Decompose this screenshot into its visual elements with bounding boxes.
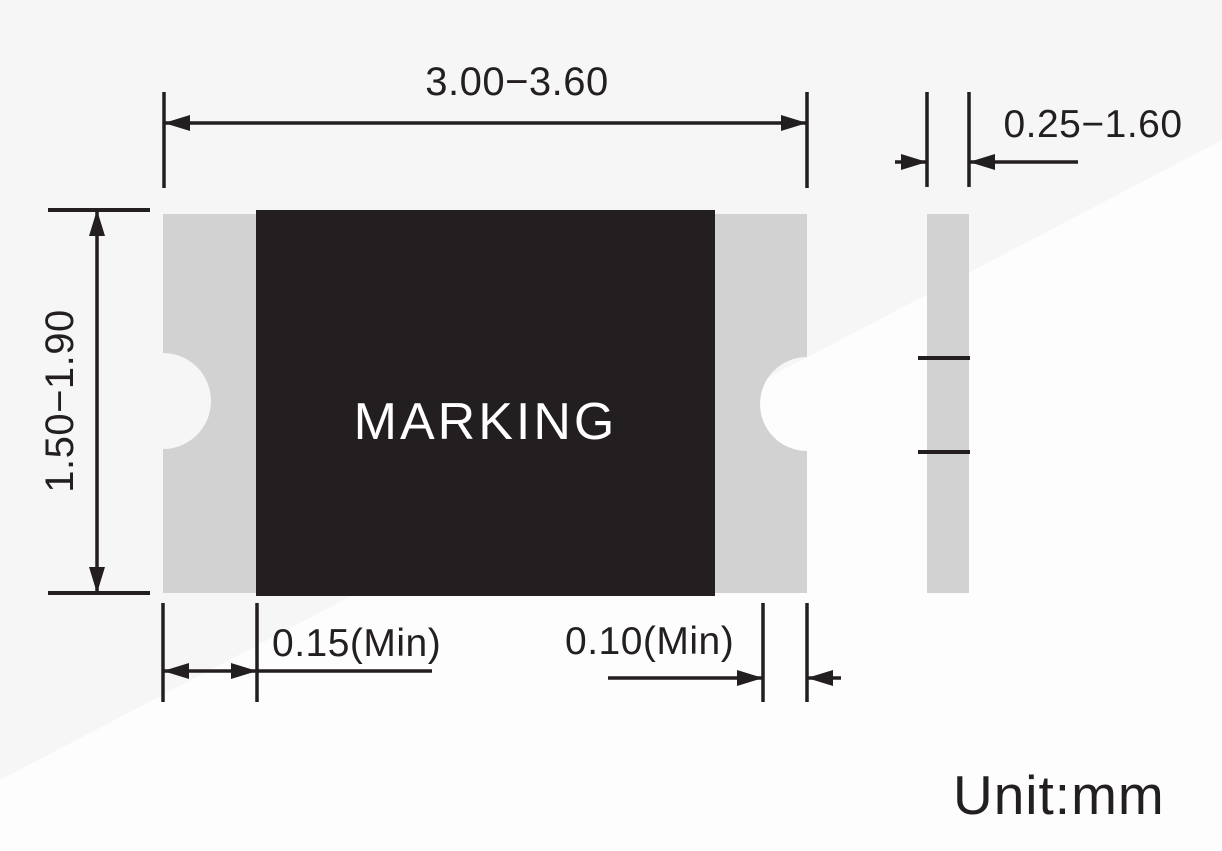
dim-label-body-width: 3.00−3.60 [397, 62, 637, 102]
unit-note: Unit:mm [953, 768, 1165, 823]
top-view-left-pad [163, 214, 256, 593]
dim-label-right-pad-min: 0.10(Min) [565, 622, 734, 661]
package-dimension-drawing: 3.00−3.60 1.50−1.90 0.15(Min) 0.10(Min) … [0, 0, 1222, 851]
dim-body-width [164, 92, 807, 188]
dim-label-body-height: 1.50−1.90 [40, 251, 84, 551]
side-view-strip [927, 214, 969, 593]
dim-label-left-pad-min: 0.15(Min) [272, 624, 441, 663]
dim-label-thickness: 0.25−1.60 [988, 105, 1198, 144]
top-view-right-pad [714, 214, 807, 593]
marking-label: MARKING [256, 396, 715, 448]
